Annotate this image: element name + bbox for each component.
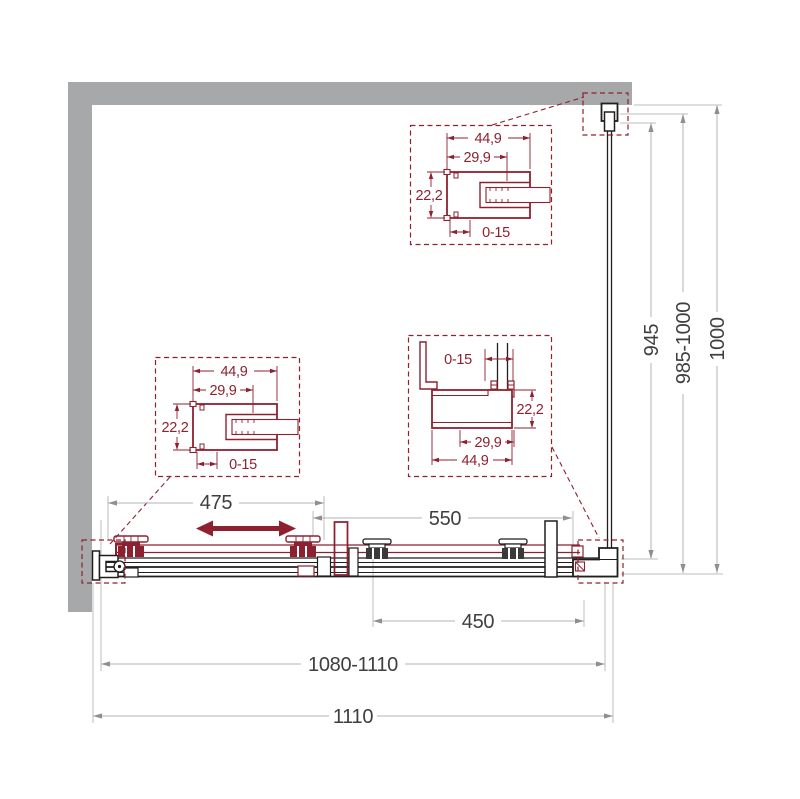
dim-label: 450 [462,611,495,633]
dim-label: 550 [429,508,462,530]
dim-label: 44,9 [220,364,247,380]
right-corner-bracket [572,546,618,577]
callout-dim-depth: 22,2 [514,390,544,428]
dim-label: 22,2 [516,402,543,418]
detail-callout-top: 44,9 29,9 22,2 0-15 [411,126,552,245]
dim-label: 22,2 [161,420,188,436]
callout-dim-depth: 22,2 [415,172,445,218]
callout-dim-depth: 22,2 [161,404,191,450]
dim-550: 550 [313,508,572,530]
dim-label: 985-1000 [673,302,695,384]
dim-label: 29,9 [474,435,501,451]
dim-label: 29,9 [463,150,490,166]
dim-1110: 1110 [93,706,613,728]
dim-1000: 1000 [707,105,729,573]
callout-dim-adjust: 0-15 [450,220,510,241]
dim-label: 945 [641,324,663,357]
dim-label: 44,9 [474,131,501,147]
glass-top-bracket [602,104,618,132]
slide-direction-arrow-icon [196,521,296,537]
callout-dim-adjust: 0-15 [197,452,257,473]
dim-label: 1110 [333,706,374,728]
hanger-bracket [349,548,358,576]
dim-label: 0-15 [482,225,510,241]
dim-label: 0-15 [444,352,472,368]
roller-red-2 [286,536,320,576]
callout-dim-inner: 29,9 [460,430,514,451]
dim-label: 0-15 [229,457,257,473]
dim-label: 1080-1110 [308,654,398,676]
dim-label: 22,2 [415,188,442,204]
fixed-glass-panel [608,127,612,560]
roller-black-1 [363,539,391,559]
detail-callout-left: 44,9 29,9 22,2 0-15 [156,358,300,477]
technical-drawing: 44,9 29,9 22,2 0-15 [0,0,800,799]
dim-label: 475 [200,492,233,514]
dim-1080-1110: 1080-1110 [101,654,605,676]
dim-label: 29,9 [209,383,236,399]
hanger-bracket-2 [318,557,331,576]
callout-dim-adjust: 0-15 [444,349,513,381]
detail-callout-right: 0-15 22,2 29,9 44,9 [409,336,552,477]
dim-450: 450 [373,611,584,633]
dim-label: 44,9 [461,453,488,469]
post-black [545,521,557,577]
dim-945: 945 [641,123,663,559]
leader-line-left [110,477,170,544]
bottom-track [93,521,619,580]
leader-line-right [552,447,599,538]
roller-black-2 [499,539,527,559]
dim-label: 1000 [707,317,729,360]
drawing-canvas: 44,9 29,9 22,2 0-15 [0,0,800,799]
dim-985-1000: 985-1000 [673,114,695,573]
